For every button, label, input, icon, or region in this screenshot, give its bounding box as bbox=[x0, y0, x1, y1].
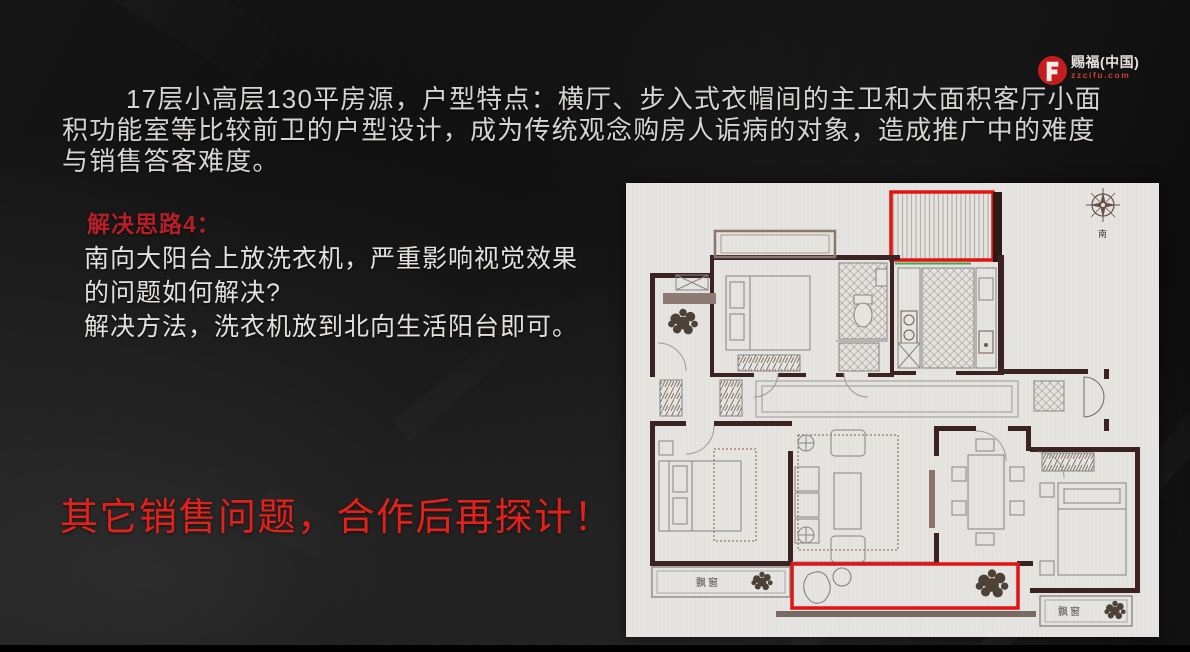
bottom-black-bar bbox=[0, 645, 1190, 652]
bay-window-left-label: 飘窗 bbox=[696, 576, 720, 589]
background-building-shape bbox=[61, 0, 279, 84]
compass-south-label: 南 bbox=[1098, 228, 1107, 239]
solution-line-3: 解决方法，洗衣机放到北向生活阳台即可。 bbox=[84, 310, 578, 344]
intro-line-3: 与销售答客难度。 bbox=[62, 146, 1160, 177]
footer-statement: 其它销售问题，合作后再探计！ bbox=[60, 486, 613, 541]
floorplan-drawing: 飘窗 飘窗 南 bbox=[626, 183, 1159, 637]
compass-rose-icon bbox=[1086, 188, 1120, 222]
intro-paragraph: 17层小高层130平房源，户型特点：横厅、步入式衣帽间的主卫和大面积客厅小面 积… bbox=[62, 84, 1160, 177]
solution-line-1: 南向大阳台上放洗衣机，严重影响视觉效果 bbox=[84, 242, 578, 276]
brand-logo: 赐福(中国) zzcifu.com bbox=[1037, 55, 1139, 86]
north-life-balcony-highlight bbox=[891, 192, 1002, 264]
floorplan-image: 飘窗 飘窗 南 bbox=[626, 183, 1159, 637]
bay-window-right-label: 飘窗 bbox=[1058, 605, 1082, 618]
intro-line-2: 积功能室等比较前卫的户型设计，成为传统观念购房人诟病的对象，造成推广中的难度 bbox=[62, 115, 1160, 146]
intro-line-1: 17层小高层130平房源，户型特点：横厅、步入式衣帽间的主卫和大面积客厅小面 bbox=[62, 84, 1160, 115]
brand-name: 赐福(中国) bbox=[1071, 55, 1139, 69]
brand-logo-text: 赐福(中国) zzcifu.com bbox=[1071, 55, 1139, 80]
solution-line-2: 的问题如何解决? bbox=[84, 276, 578, 310]
presentation-slide: 赐福(中国) zzcifu.com 17层小高层130平房源，户型特点：横厅、步… bbox=[0, 0, 1190, 652]
brand-logo-icon bbox=[1037, 55, 1068, 86]
brand-domain: zzcifu.com bbox=[1071, 71, 1139, 80]
solution-body: 南向大阳台上放洗衣机，严重影响视觉效果 的问题如何解决? 解决方法，洗衣机放到北… bbox=[84, 242, 578, 344]
solution-heading: 解决思路4： bbox=[87, 205, 221, 239]
